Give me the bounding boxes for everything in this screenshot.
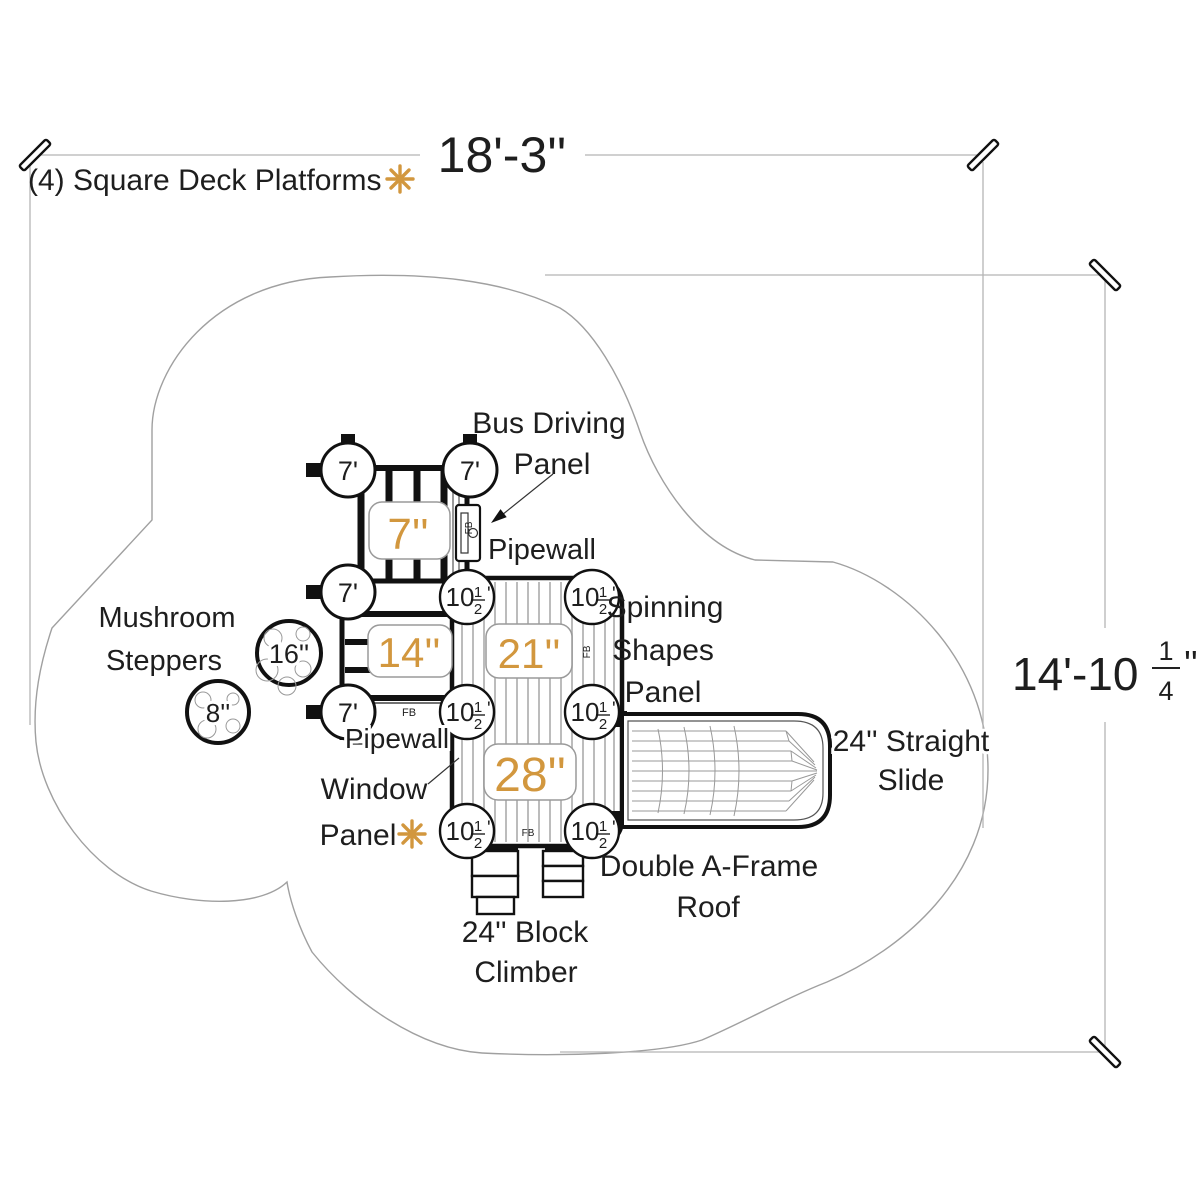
post-label-whole: 10 [571,697,600,727]
post-7ft: 7' [321,443,375,497]
post-label-suffix: ' [612,699,616,720]
post-label-whole: 10 [571,582,600,612]
window-panel-label-line1: Window [321,773,428,806]
dim-top-label: 18'-3'' [438,127,567,183]
bus-panel-label-line1: Bus Driving [472,407,625,440]
post-label-whole: 10 [446,697,475,727]
roof-label-line2: Roof [676,891,740,924]
post-label-num: 1 [599,699,607,716]
slide-label-line1: 24'' Straight [833,725,990,758]
deck-21in-label: 21'' [498,630,561,677]
post-10half: 10 1 2 ' [440,570,494,624]
post-7ft-label: 7' [460,456,480,486]
deck-14in-label: 14'' [378,629,441,676]
fb-mark: FB [582,645,593,658]
plan-canvas: 7'' 14'' 21'' 28'' 7' 7' 7' 7' 10 1 2 ' [0,0,1200,1200]
spinning-label-line2: Shapes [612,634,714,667]
dim-right-den: 4 [1158,676,1173,706]
post-label-num: 1 [599,818,607,835]
stepper-16in-label: 16'' [269,639,309,669]
post-7ft: 7' [321,565,375,619]
straight-slide [611,711,830,827]
mushroom-label-line2: Steppers [106,645,222,677]
playground-plan-drawing: 7'' 14'' 21'' 28'' 7' 7' 7' 7' 10 1 2 ' [0,0,1200,1200]
post-label-den: 2 [474,716,482,733]
slide-label-line2: Slide [878,764,945,797]
dim-right-whole: 14'-10 [1012,648,1138,700]
climber-block [543,866,583,881]
post-label-suffix: ' [487,699,491,720]
post-label-num: 1 [474,699,482,716]
pipewall-top-label: Pipewall [488,534,596,566]
spinning-label-line1: Spinning [607,591,724,624]
climber-block [543,881,583,897]
dim-right-suffix: '' [1184,643,1198,684]
pipewall-bottom-label: Pipewall [345,723,449,754]
climber-block [472,876,518,897]
window-panel-label-line2: Panel [320,819,397,852]
post-label-den: 2 [474,601,482,618]
fb-mark: FB [522,828,535,839]
post-label-whole: 10 [571,816,600,846]
post-10half: 10 1 2 ' [440,804,494,858]
post-label-suffix: ' [612,818,616,839]
post-label-den: 2 [599,716,607,733]
post-7ft-label: 7' [338,578,358,608]
climber-block [477,897,514,914]
block-climber [472,845,583,914]
stepper-8in-label: 8'' [206,698,230,728]
post-label-num: 1 [474,584,482,601]
post-7ft-label: 7' [338,456,358,486]
post-label-num: 1 [474,818,482,835]
deck-28in-label: 28'' [494,749,566,802]
climber-label-line1: 24'' Block [462,916,590,949]
bus-panel-label-line2: Panel [514,448,591,481]
window-panel-asterisk-icon [399,821,425,847]
page-title: (4) Square Deck Platforms [28,164,381,197]
post-label-whole: 10 [446,816,475,846]
post-7ft: 7' [443,443,497,497]
climber-label-line2: Climber [474,956,577,989]
mushroom-label-line1: Mushroom [99,602,236,634]
dim-right-num: 1 [1158,636,1173,666]
post-label-suffix: ' [487,818,491,839]
bus-panel-arrowhead-icon [491,509,507,523]
fb-mark: FB [464,521,475,534]
post-label-whole: 10 [446,582,475,612]
roof-label-line1: Double A-Frame [600,850,818,883]
title-asterisk-icon [387,166,413,192]
deck-7in-label: 7'' [387,510,428,559]
post-label-suffix: ' [487,584,491,605]
fb-mark: FB [402,707,416,719]
post-label-den: 2 [474,835,482,852]
spinning-label-line3: Panel [625,676,702,709]
post-10half: 10 1 2 ' [565,685,619,739]
dim-right-label: 14'-10 1 4 '' [1012,636,1198,706]
